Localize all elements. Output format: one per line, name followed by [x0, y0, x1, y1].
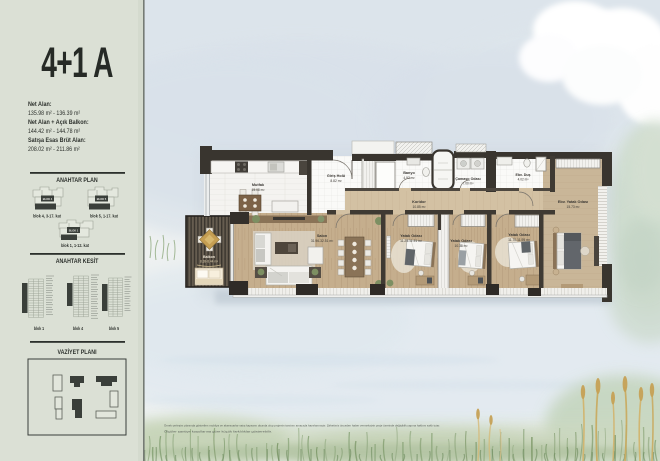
svg-text:4.02 m²: 4.02 m²	[518, 178, 529, 182]
svg-text:Balkon: Balkon	[203, 255, 215, 259]
svg-text:blok 1: blok 1	[34, 326, 45, 331]
svg-text:8.38-8.44 m²: 8.38-8.44 m²	[200, 260, 218, 264]
svg-text:BLOK 4: BLOK 4	[43, 197, 53, 201]
svg-text:Ebv. Yatak Odası: Ebv. Yatak Odası	[558, 200, 588, 204]
svg-text:10.85 m²: 10.85 m²	[412, 205, 426, 209]
svg-text:blok 4, 3-17. kat: blok 4, 3-17. kat	[33, 213, 61, 218]
svg-text:Örnek yerleşim planında göster: Örnek yerleşim planında gösterilen mobil…	[164, 423, 440, 427]
svg-text:Satışa Esas Brüt Alan:: Satışa Esas Brüt Alan:	[28, 138, 86, 144]
svg-text:11.25-11.31 m²: 11.25-11.31 m²	[400, 239, 423, 243]
svg-text:ANAHTAR PLAN: ANAHTAR PLAN	[56, 178, 97, 184]
svg-text:144.42 m² - 144.78 m²: 144.42 m² - 144.78 m²	[28, 129, 80, 135]
svg-text:BLOK 5: BLOK 5	[97, 197, 107, 201]
svg-text:8.82 m²: 8.82 m²	[330, 179, 342, 183]
svg-text:Koridor: Koridor	[412, 200, 426, 204]
svg-text:VAZİYET PLANI: VAZİYET PLANI	[57, 349, 96, 357]
svg-text:10.38 m²: 10.38 m²	[454, 244, 468, 248]
svg-text:blok 5, 1-17. kat: blok 5, 1-17. kat	[90, 213, 118, 218]
svg-text:4+1 A: 4+1 A	[41, 38, 113, 87]
svg-text:Ebv. Duş: Ebv. Duş	[515, 173, 530, 177]
svg-text:Giriş Holü: Giriş Holü	[327, 174, 346, 178]
svg-text:Net Alan:: Net Alan:	[28, 102, 52, 108]
svg-text:BLOK 1: BLOK 1	[69, 228, 79, 232]
svg-text:blok 1, 1-12. kat: blok 1, 1-12. kat	[61, 243, 89, 248]
svg-text:Banyo: Banyo	[403, 171, 415, 175]
svg-text:blok 4: blok 4	[73, 326, 84, 331]
svg-text:Mutfak: Mutfak	[252, 183, 265, 187]
svg-text:Ölçüler şantiye koşullarına gö: Ölçüler şantiye koşullarına göre küçük f…	[164, 429, 272, 433]
svg-text:11.70-11.95 m²: 11.70-11.95 m²	[508, 238, 531, 242]
svg-text:blok 5: blok 5	[109, 326, 120, 331]
svg-text:15.73 m²: 15.73 m²	[566, 205, 580, 209]
svg-text:Yatak Odası: Yatak Odası	[450, 239, 472, 243]
svg-text:15.08 m²: 15.08 m²	[251, 188, 265, 192]
svg-text:135.98 m² - 136.39 m²: 135.98 m² - 136.39 m²	[28, 111, 80, 117]
svg-text:208.02 m² - 211.86 m²: 208.02 m² - 211.86 m²	[28, 147, 80, 153]
svg-text:ANAHTAR KESİT: ANAHTAR KESİT	[56, 258, 99, 266]
svg-text:Yatak Odası: Yatak Odası	[508, 233, 530, 237]
svg-text:Net Alan + Açık Balkon:: Net Alan + Açık Balkon:	[28, 120, 89, 126]
svg-text:31.96-32.51 m²: 31.96-32.51 m²	[311, 239, 334, 243]
svg-text:Salon: Salon	[317, 234, 328, 238]
svg-text:Yatak Odası: Yatak Odası	[400, 234, 422, 238]
